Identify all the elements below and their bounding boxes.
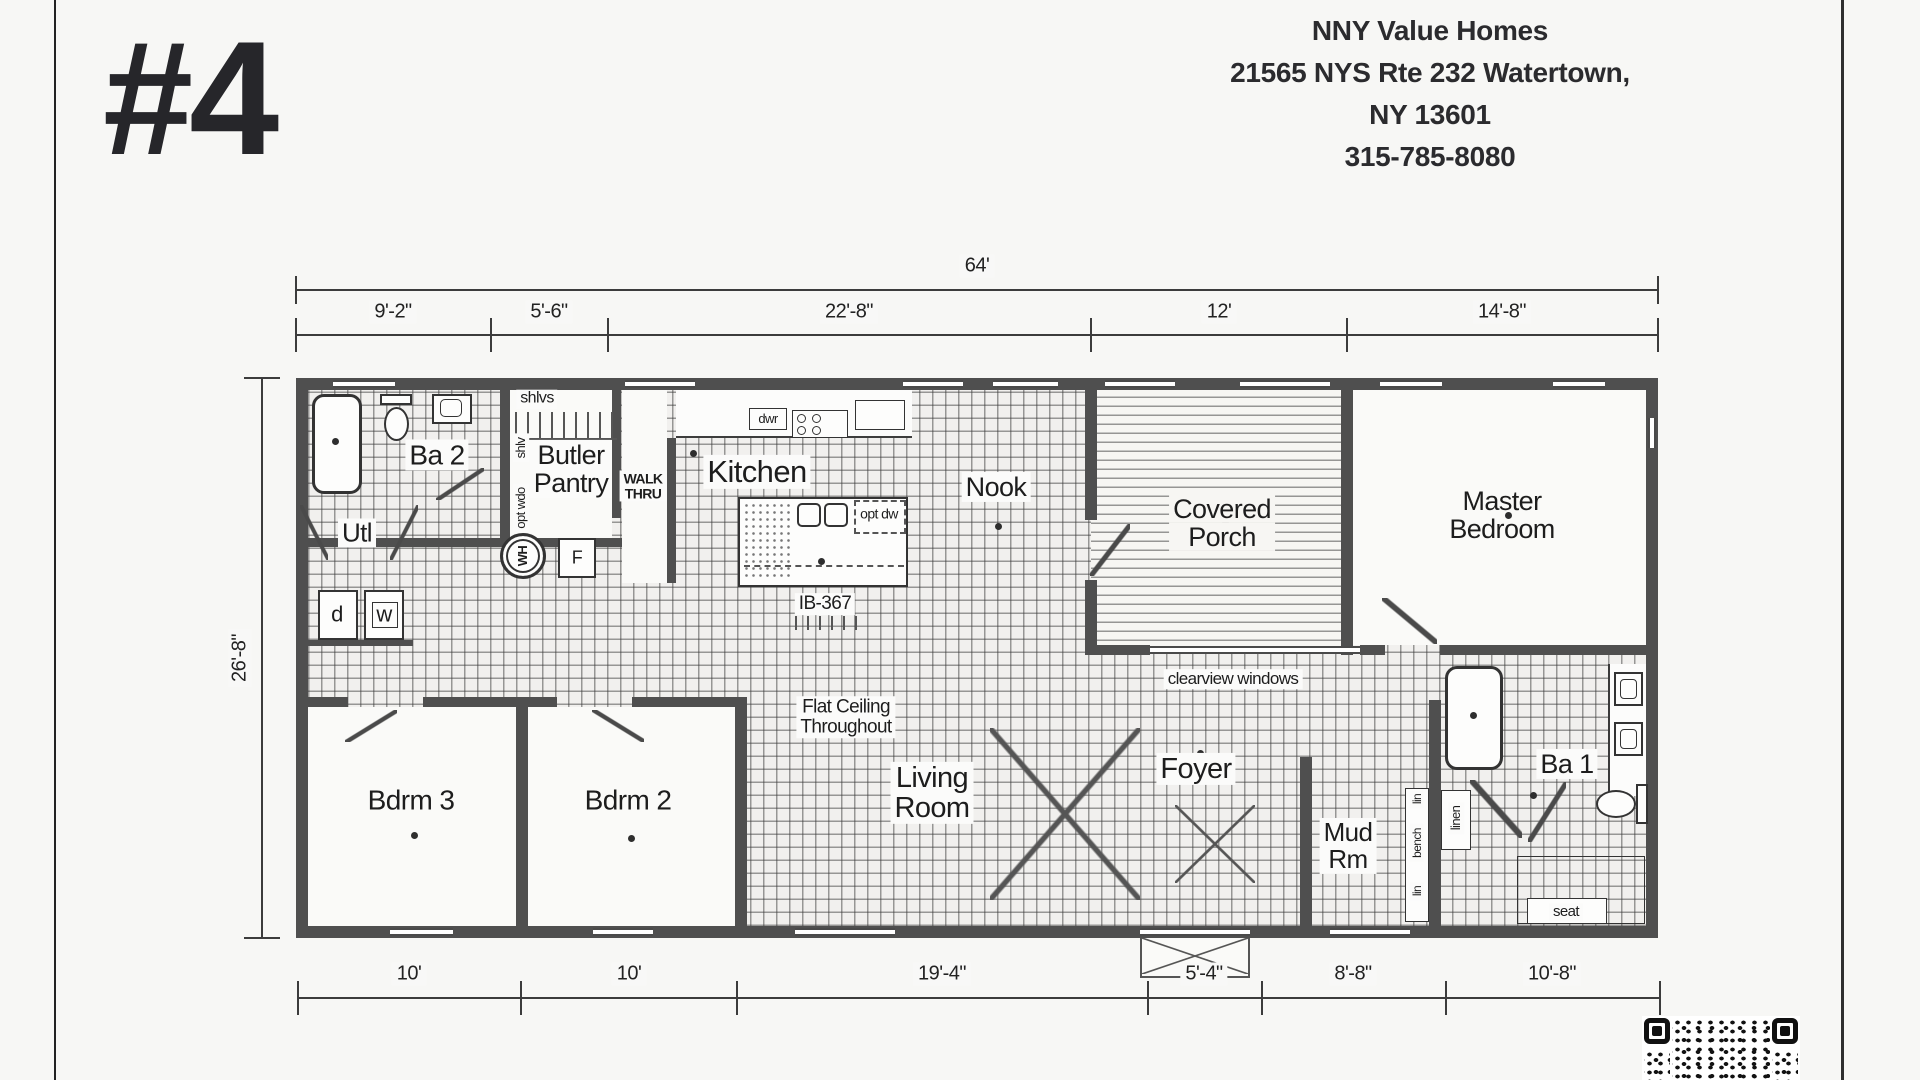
dwr-label: dwr [754, 411, 781, 427]
clearview-window-band [1150, 646, 1360, 654]
door-swing [592, 710, 644, 742]
burner [797, 426, 806, 435]
window [1380, 380, 1442, 388]
island-dashed-line [744, 565, 904, 567]
dim-tick [1659, 981, 1661, 1015]
front-door-opening [1140, 928, 1250, 936]
window [993, 380, 1058, 388]
wall-nook-porch [1085, 580, 1097, 655]
door-swing [1090, 524, 1130, 576]
sink-bowl [1620, 729, 1637, 749]
walk-line2: THRU [624, 486, 663, 501]
pantry-shelves [515, 412, 617, 440]
fixture-dot [690, 450, 697, 457]
island-sink-bowl [797, 503, 821, 527]
fixture-dot [628, 835, 635, 842]
burner [812, 426, 821, 435]
toilet-tank [1636, 784, 1648, 824]
window [1553, 380, 1605, 388]
door-swing [1382, 598, 1437, 644]
room-label-bdrm3: Bdrm 3 [364, 784, 459, 815]
foyer-living-cross [990, 728, 1140, 900]
dim-tick [1657, 276, 1659, 304]
porch-opening [1105, 380, 1175, 388]
shlvs-label: shlvs [516, 390, 557, 409]
room-label-mud-rm: Mud Rm [1320, 818, 1377, 874]
fixture-dot [995, 523, 1002, 530]
opt-dw-label: opt dw [856, 506, 902, 523]
flat-ceiling-line1: Flat Ceiling [800, 697, 891, 717]
opt-wdo-label: opt wdo [513, 483, 529, 532]
hatch-marks [795, 616, 859, 630]
wall-ba2-butler [500, 390, 510, 547]
company-address-line2: NY 13601 [1150, 94, 1710, 136]
tub-drain [332, 438, 339, 445]
door-swing [300, 505, 328, 560]
dim-tick [520, 981, 522, 1015]
exterior-wall-left [296, 378, 308, 938]
dim-segment: 5'-4" [1180, 963, 1227, 986]
fixture-dot [411, 832, 418, 839]
wall-master-south [1440, 645, 1658, 655]
dim-line-bottom-segments [298, 997, 1660, 999]
dim-tick [490, 318, 492, 352]
sink-bowl [1620, 679, 1637, 699]
counter-cabinet [855, 400, 905, 430]
walk-line1: WALK [624, 471, 663, 486]
island-stipple [743, 502, 791, 580]
dim-tick [295, 318, 297, 352]
room-label-living-room: Living Room [891, 762, 974, 824]
dim-tick [1445, 981, 1447, 1015]
wall-kitchen-left [667, 438, 676, 583]
room-label-ba2: Ba 2 [405, 439, 468, 470]
wall-bedrooms-top [308, 697, 348, 707]
clearview-windows-label: clearview windows [1164, 669, 1303, 689]
scan-border-right [1841, 0, 1844, 1080]
room-label-foyer: Foyer [1156, 753, 1235, 785]
seat-label: seat [1549, 903, 1583, 921]
room-label-covered-porch: Covered Porch [1165, 494, 1279, 552]
dim-segment: 14'-8" [1473, 301, 1531, 324]
dim-segment: 5'-6" [525, 301, 572, 324]
exterior-wall-right [1646, 378, 1658, 938]
model-number-label: IB-367 [795, 593, 855, 615]
mud-line1: Mud [1324, 819, 1373, 846]
plan-number: #4 [103, 18, 275, 180]
dim-tick [607, 318, 609, 352]
wall-porch-master [1341, 390, 1353, 655]
dim-segment: 22'-8" [820, 301, 878, 324]
door-swing [390, 505, 418, 560]
water-heater-label: WH [515, 542, 531, 570]
tub-drain [1470, 712, 1477, 719]
toilet-icon [384, 407, 409, 441]
qr-finder-pattern [1644, 1018, 1670, 1044]
dim-tick [244, 937, 280, 939]
exterior-wall-bottom [296, 926, 1658, 938]
window [795, 928, 895, 936]
burner [797, 414, 806, 423]
dim-tick [1261, 981, 1263, 1015]
dim-tick [736, 981, 738, 1015]
room-label-master-bedroom: Master Bedroom [1445, 486, 1558, 544]
door-swing [436, 468, 484, 500]
wall-master-south [1360, 645, 1385, 655]
dim-segment: 10' [612, 963, 647, 986]
company-address-line1: 21565 NYS Rte 232 Watertown, [1150, 52, 1710, 94]
exterior-wall-top [296, 378, 1658, 390]
walk-thru-label: WALK THRU [620, 470, 667, 501]
wall-bdrm-divider [516, 697, 528, 926]
wall-foyer-mud [1300, 757, 1312, 926]
window [593, 928, 653, 936]
master-line1: Master [1449, 487, 1554, 515]
butler-line1: Butler [534, 441, 608, 469]
flat-ceiling-label: Flat Ceiling Throughout [796, 696, 895, 738]
porch-opening [1240, 380, 1330, 388]
fixture-dot [818, 558, 825, 565]
qr-code [1642, 1016, 1800, 1080]
qr-modules [1644, 1050, 1670, 1080]
window [625, 380, 695, 388]
dryer-label: d [327, 603, 347, 628]
wall-bdrm2-living [735, 697, 747, 926]
bdrm3-floor [308, 707, 516, 926]
dim-segment: 8'-8" [1329, 963, 1376, 986]
toilet-tank [380, 394, 412, 405]
company-header: NNY Value Homes 21565 NYS Rte 232 Watert… [1150, 10, 1710, 178]
dim-line-height [261, 378, 263, 938]
window [333, 380, 395, 388]
company-name: NNY Value Homes [1150, 10, 1710, 52]
wall-bedrooms-top [632, 697, 745, 707]
door-swing [345, 710, 397, 742]
room-label-bdrm2: Bdrm 2 [581, 784, 676, 815]
dim-tick [1346, 318, 1348, 352]
scanned-floor-plan-page: #4 NNY Value Homes 21565 NYS Rte 232 Wat… [0, 0, 1920, 1080]
porch-line2: Porch [1169, 523, 1275, 551]
wall-laundry-front [308, 640, 413, 646]
sink-bowl [440, 399, 462, 417]
fixture-dot [1530, 792, 1537, 799]
shlv-label: shlv [513, 434, 529, 463]
island-sink-bowl [824, 503, 848, 527]
dim-tick [1657, 318, 1659, 352]
dim-total-width: 64' [960, 255, 995, 278]
bench-label: bench [1410, 824, 1424, 862]
linen-label: linen [1448, 802, 1464, 834]
qr-modules [1772, 1050, 1798, 1080]
dim-segment: 9'-2" [369, 301, 416, 324]
qr-modules [1672, 1018, 1770, 1080]
mud-room-door [1330, 928, 1410, 936]
room-label-butler-pantry: Butler Pantry [530, 440, 612, 498]
porch-line1: Covered [1169, 495, 1275, 523]
room-label-nook: Nook [962, 472, 1031, 502]
dim-height: 26'-8" [229, 629, 252, 687]
dim-line-top-segments [296, 334, 1658, 336]
wall-south-porch [1085, 645, 1150, 655]
window [903, 380, 963, 388]
washer-label: w [372, 603, 395, 628]
mud-line2: Rm [1324, 846, 1373, 873]
wall-mud-ba1 [1429, 700, 1441, 926]
dim-segment: 19'-4" [913, 963, 971, 986]
living-line2: Room [895, 793, 970, 823]
dim-line-total-width [296, 289, 1658, 291]
fridge-label: F [568, 548, 586, 569]
dim-segment: 12' [1202, 301, 1237, 324]
scan-border-left [54, 0, 56, 1080]
lin-label-bottom: lin [1410, 882, 1424, 900]
living-line1: Living [895, 763, 970, 793]
door-swing [1528, 782, 1566, 842]
wall-bedrooms-top [423, 697, 557, 707]
wall-nook-porch [1085, 390, 1097, 520]
butler-line2: Pantry [534, 469, 608, 497]
room-label-utl: Utl [338, 518, 376, 547]
dim-segment: 10'-8" [1523, 963, 1581, 986]
dim-segment: 10' [392, 963, 427, 986]
window [390, 928, 453, 936]
window [1648, 418, 1656, 448]
company-phone: 315-785-8080 [1150, 136, 1710, 178]
door-swing [1470, 780, 1522, 838]
flat-ceiling-line2: Throughout [800, 717, 891, 737]
qr-finder-pattern [1772, 1018, 1798, 1044]
dim-tick [295, 276, 297, 304]
burner [812, 414, 821, 423]
master-line2: Bedroom [1449, 515, 1554, 543]
foyer-closet-cross [1175, 805, 1255, 883]
toilet-icon [1596, 790, 1636, 818]
room-label-kitchen: Kitchen [703, 455, 810, 489]
room-label-ba1: Ba 1 [1536, 749, 1597, 779]
lin-label-top: lin [1410, 790, 1424, 808]
dim-tick [244, 377, 280, 379]
dim-tick [297, 981, 299, 1015]
dim-tick [1147, 981, 1149, 1015]
dim-tick [1090, 318, 1092, 352]
